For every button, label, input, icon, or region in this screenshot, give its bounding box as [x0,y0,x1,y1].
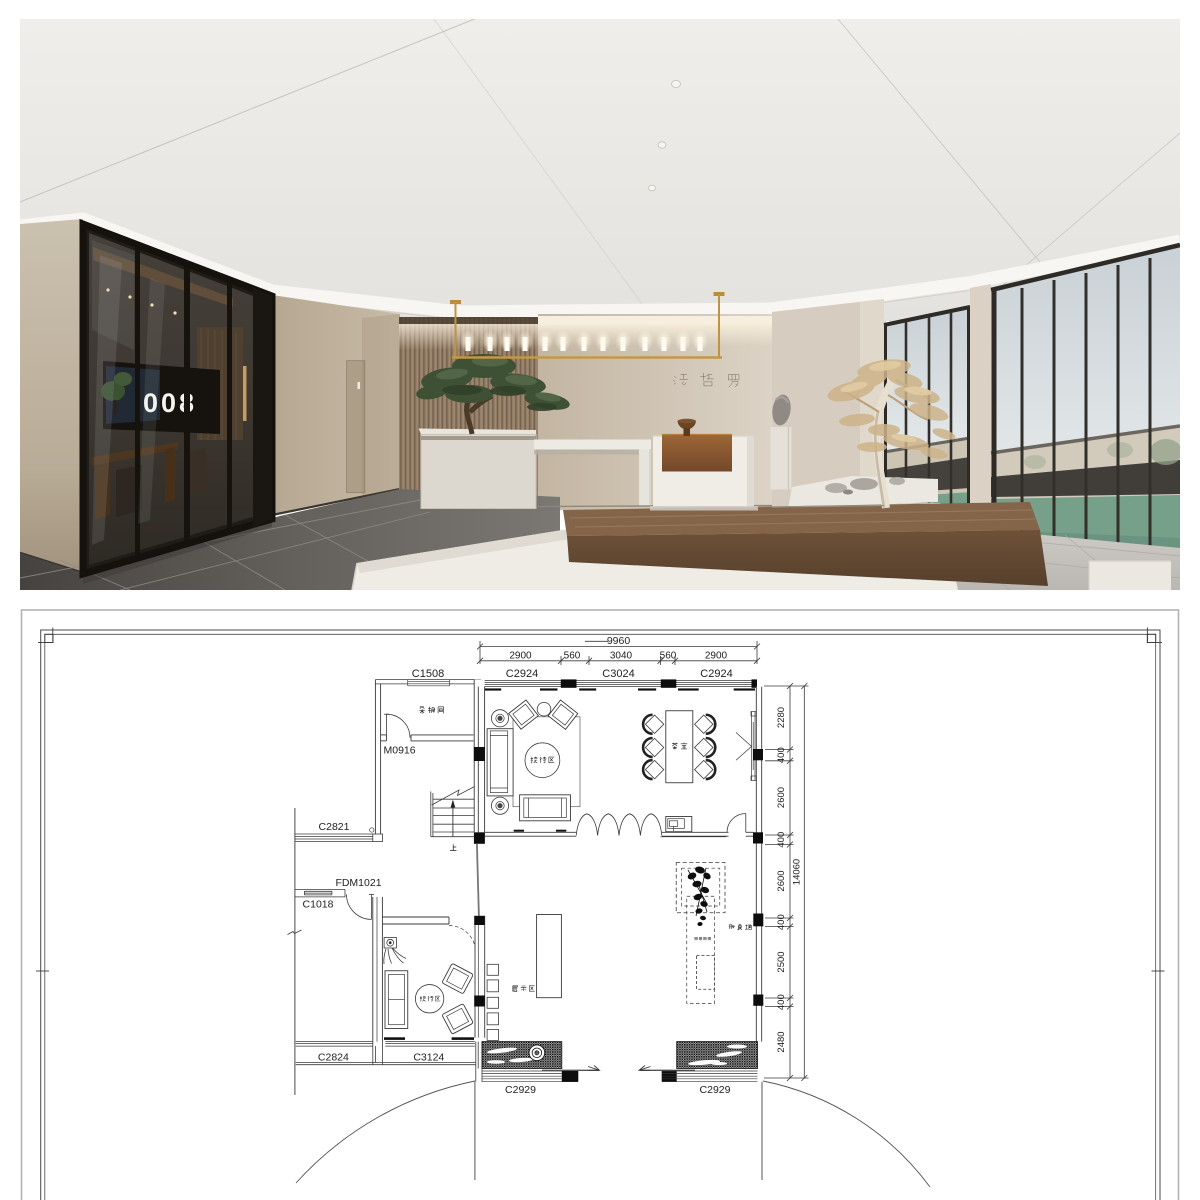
svg-text:400: 400 [776,994,787,1010]
svg-text:2600: 2600 [776,870,787,891]
svg-text:400: 400 [776,832,787,848]
svg-text:400: 400 [776,747,787,763]
svg-text:3040: 3040 [610,650,633,661]
svg-text:560: 560 [564,650,581,661]
svg-text:C3024: C3024 [602,668,634,680]
svg-text:14060: 14060 [792,859,803,885]
svg-text:2900: 2900 [705,650,728,661]
svg-text:C2924: C2924 [700,668,732,680]
svg-text:2280: 2280 [776,707,787,728]
svg-text:2600: 2600 [776,787,787,808]
svg-text:C2929: C2929 [505,1084,536,1096]
svg-text:C3124: C3124 [413,1052,444,1064]
svg-text:9960: 9960 [607,635,631,647]
svg-text:C2924: C2924 [506,668,538,680]
svg-text:2500: 2500 [776,951,787,972]
svg-text:400: 400 [776,914,787,930]
svg-text:C2821: C2821 [319,821,350,833]
svg-text:M0916: M0916 [384,745,416,757]
svg-text:C2824: C2824 [318,1052,349,1064]
svg-text:C1018: C1018 [303,899,334,911]
svg-text:C1508: C1508 [412,668,444,680]
svg-text:C2929: C2929 [700,1084,731,1096]
svg-text:560: 560 [660,650,677,661]
svg-text:2480: 2480 [776,1031,787,1052]
svg-text:FDM1021: FDM1021 [335,877,381,889]
svg-text:2900: 2900 [509,650,532,661]
